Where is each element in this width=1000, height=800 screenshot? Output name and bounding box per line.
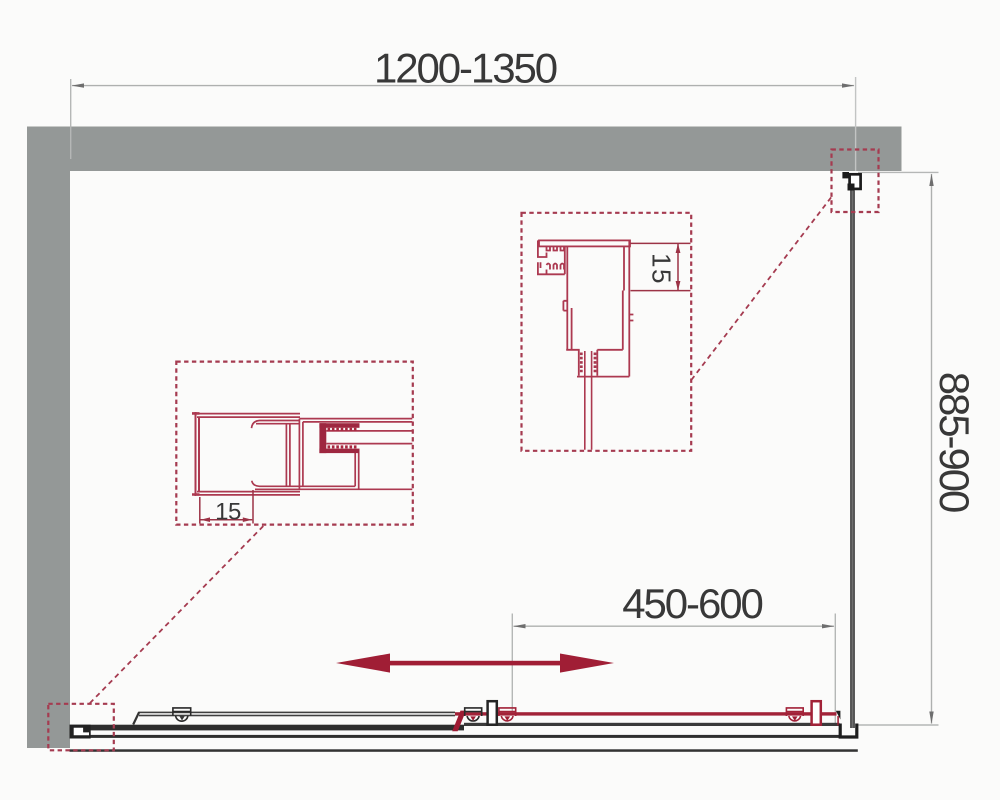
svg-text:1200-1350: 1200-1350 [374,45,557,92]
svg-text:450-600: 450-600 [622,580,762,627]
svg-text:15: 15 [215,499,241,526]
svg-text:15: 15 [647,253,677,285]
svg-text:885-900: 885-900 [931,372,978,512]
